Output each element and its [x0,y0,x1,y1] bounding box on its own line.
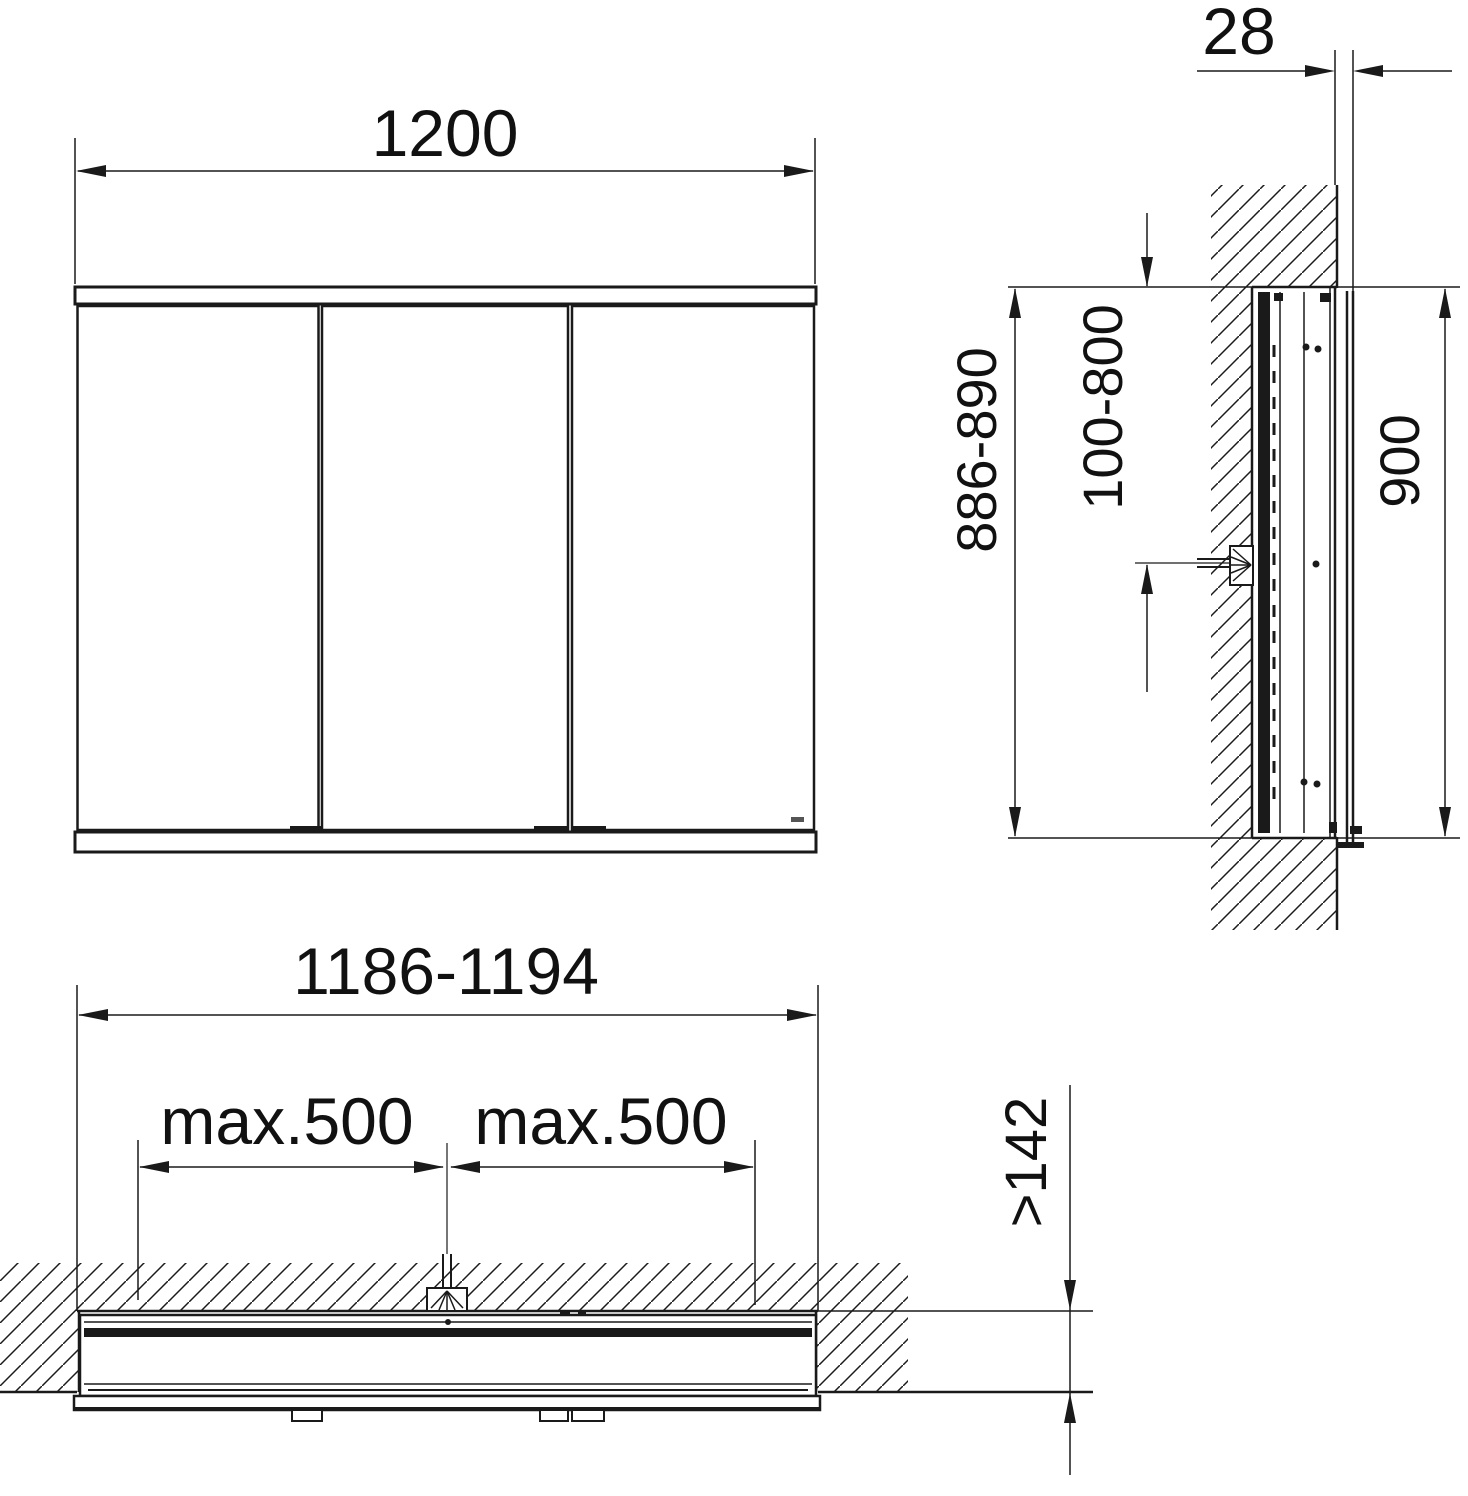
door-bottom-cap [1337,842,1364,848]
arrowhead-up [1009,288,1021,318]
arrowhead-right [724,1161,754,1173]
arrowhead-up [1141,564,1153,594]
mirror-bar [84,1328,812,1337]
installation-drawing: 1200 28 886-890 100-800 900 1186-1194 ma… [0,0,1468,1496]
side-depth-label: 28 [1139,0,1339,62]
front-width-label: 1200 [245,98,645,168]
side-height-dimension [1439,288,1451,837]
bottom-strip [75,832,816,852]
handle-mark [290,826,322,833]
plan-niche-depth-dimension [1064,1085,1076,1475]
hinge-block [1274,293,1283,301]
door-left [78,306,319,830]
arrowhead-left [1353,65,1383,77]
side-cutout-height-label: 886-890 [947,290,1007,610]
arrowhead-left [450,1161,480,1173]
door-middle [322,306,568,830]
side-cutout-height-dimension [1009,288,1021,837]
side-connection-height-dimension [1141,213,1153,692]
plan-view [0,985,1093,1475]
arrowhead-down [1439,807,1451,837]
arrowhead-left [78,1009,108,1021]
arrowhead-up [1439,288,1451,318]
plan-max-right-label: max.500 [401,1088,801,1154]
keuco-logo-mark [791,817,804,822]
arrowhead-right [414,1161,444,1173]
arrowhead-down [1064,1280,1076,1310]
arrowhead-left [76,165,106,177]
handle-mark [534,826,568,833]
hinge-tab [572,1410,604,1421]
handle-mark [571,826,606,833]
door-right [572,306,814,830]
arrowhead-down [1009,807,1021,837]
plan-niche-depth-label: >142 [997,1002,1057,1322]
power-connection-symbol [1135,546,1253,585]
arrowhead-down [1141,257,1153,287]
arrowhead-up [1064,1393,1076,1423]
hinge-tab [292,1410,322,1421]
arrowhead-right [784,165,814,177]
top-canopy [75,287,816,304]
side-connection-height-label: 100-800 [1073,247,1133,567]
front-cabinet [75,287,816,852]
front-view [75,138,816,852]
drawing-canvas [0,0,1468,1496]
arrowhead-right [787,1009,817,1021]
arrowhead-right [1305,65,1335,77]
hinge-tab [540,1410,568,1421]
side-height-label: 900 [1370,301,1430,621]
mirror-back-bar [1258,292,1270,833]
hinge-block [1329,822,1337,833]
plan-niche-width-label: 1186-1194 [196,936,696,1006]
plan-cabinet [74,1311,820,1421]
arrowhead-left [139,1161,169,1173]
hinge-block [1320,293,1331,302]
